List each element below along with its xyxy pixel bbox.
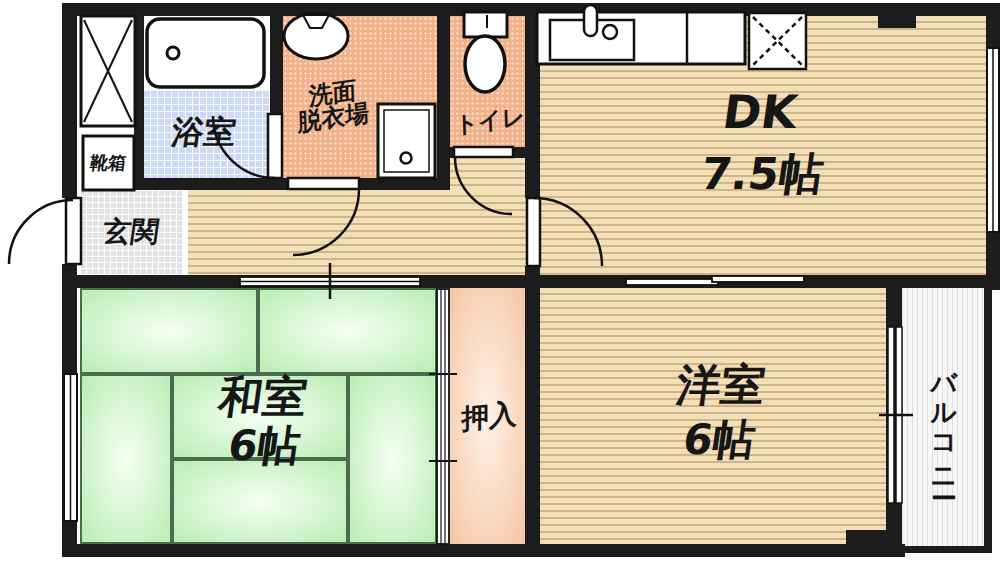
washing-machine-pan-icon [378,104,435,178]
genkan-step-strip [183,190,188,275]
kitchen-counter-icon [537,5,745,64]
toilet-door [454,147,513,214]
dk-label: DK [720,89,800,136]
sliding-door-dk-youshitsu [626,276,804,285]
fusuma-door-oshiire [429,289,457,544]
washroom-label: 洗面 脱衣場 [296,76,369,135]
washitsu-window-icon [64,374,77,521]
bathtub-icon [147,19,264,87]
door-swing-icon [9,200,73,264]
oshiire-label: 押入 [461,400,517,435]
pipe-space-icon [81,16,135,126]
door-swing-icon [293,189,359,255]
washroom-door [288,178,359,255]
entrance-door [9,198,81,264]
refrigerator-space-icon [749,13,806,69]
washitsu-label: 和室 [216,375,310,420]
wash-basin-icon [284,13,348,59]
shoebox-label: 靴箱 [89,154,128,172]
floor-plan: 浴室 洗面 脱衣場 トイレ 靴箱 玄関 DK 7.5帖 和室 6帖 洋室 6帖 … [0,0,1000,562]
faucet-icon [584,5,597,36]
youshitsu-size-label: 6帖 [680,419,757,462]
door-swing-icon [534,198,602,266]
balcony-label: バルコニー [931,353,958,486]
toilet-icon [464,12,507,92]
dk-window-icon [987,48,999,232]
dk-door [527,198,602,266]
youshitsu-label: 洋室 [674,363,768,408]
balcony-window-icon [879,327,913,503]
washitsu-size-label: 6帖 [225,425,302,468]
knob-icon [603,25,617,39]
genkan-label: 玄関 [101,218,161,247]
symbols-layer [0,0,1000,562]
door-swing-icon [455,157,512,214]
dk-size-label: 7.5帖 [698,152,826,197]
sliding-door-hallway-washitsu [240,263,420,299]
bathroom-label: 浴室 [170,116,239,149]
